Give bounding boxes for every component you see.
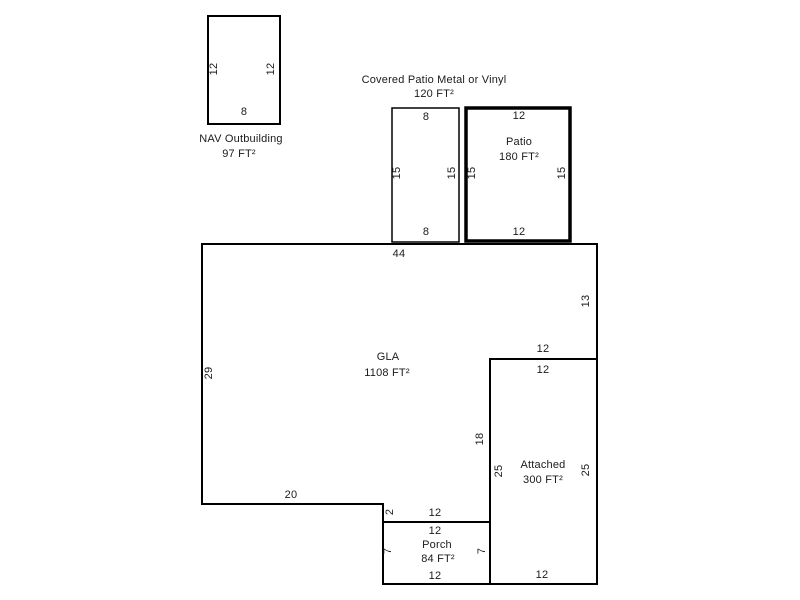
attached-dim-right: 25 bbox=[580, 464, 592, 477]
floorplan-sketch: 12 12 8 NAV Outbuilding 97 FT² Covered P… bbox=[0, 0, 800, 600]
gla-dim-bottom-mid: 12 bbox=[429, 507, 442, 519]
outbuilding-label: NAV Outbuilding bbox=[199, 133, 283, 145]
gla-dim-step: 2 bbox=[384, 509, 396, 515]
patio-dim-bottom: 12 bbox=[513, 226, 526, 238]
attached-dim-left: 25 bbox=[493, 465, 505, 478]
porch-dim-top: 12 bbox=[429, 525, 442, 537]
patio-label: Patio bbox=[506, 136, 532, 148]
gla-dim-inner-right: 18 bbox=[474, 433, 486, 446]
porch-dim-bottom: 12 bbox=[429, 570, 442, 582]
gla-dim-bottom-left: 20 bbox=[285, 489, 298, 501]
covered-patio-dim-left: 15 bbox=[391, 167, 403, 180]
gla-dim-notch: 12 bbox=[537, 343, 550, 355]
patio-dim-left: 15 bbox=[466, 167, 478, 180]
attached-dim-top: 12 bbox=[537, 364, 550, 376]
porch-label: Porch bbox=[422, 539, 452, 551]
porch-dim-left: 7 bbox=[382, 548, 394, 554]
gla-dim-left: 29 bbox=[203, 367, 215, 380]
outbuilding-dim-right: 12 bbox=[265, 63, 277, 76]
patio-area: 180 FT² bbox=[499, 151, 539, 163]
porch-dim-right: 7 bbox=[476, 548, 488, 554]
covered-patio-area: 120 FT² bbox=[414, 88, 454, 100]
attached-dim-bottom: 12 bbox=[536, 569, 549, 581]
gla-area: 1108 FT² bbox=[364, 367, 409, 379]
outbuilding-dim-bottom: 8 bbox=[241, 106, 247, 118]
patio-outline bbox=[466, 108, 570, 241]
covered-patio-label: Covered Patio Metal or Vinyl bbox=[362, 74, 507, 86]
patio-dim-right: 15 bbox=[556, 167, 568, 180]
outbuilding-dim-left: 12 bbox=[208, 63, 220, 76]
attached-area: 300 FT² bbox=[523, 474, 563, 486]
gla-label: GLA bbox=[377, 351, 400, 363]
covered-patio-dim-top: 8 bbox=[423, 111, 429, 123]
patio-dim-top: 12 bbox=[513, 110, 526, 122]
porch-area: 84 FT² bbox=[421, 553, 455, 565]
covered-patio-dim-right: 15 bbox=[446, 167, 458, 180]
covered-patio-dim-bottom: 8 bbox=[423, 226, 429, 238]
floorplan-shapes bbox=[0, 0, 800, 600]
gla-dim-right: 13 bbox=[580, 295, 592, 308]
outbuilding-area: 97 FT² bbox=[222, 148, 256, 160]
gla-dim-top: 44 bbox=[393, 248, 406, 260]
attached-label: Attached bbox=[520, 459, 565, 471]
